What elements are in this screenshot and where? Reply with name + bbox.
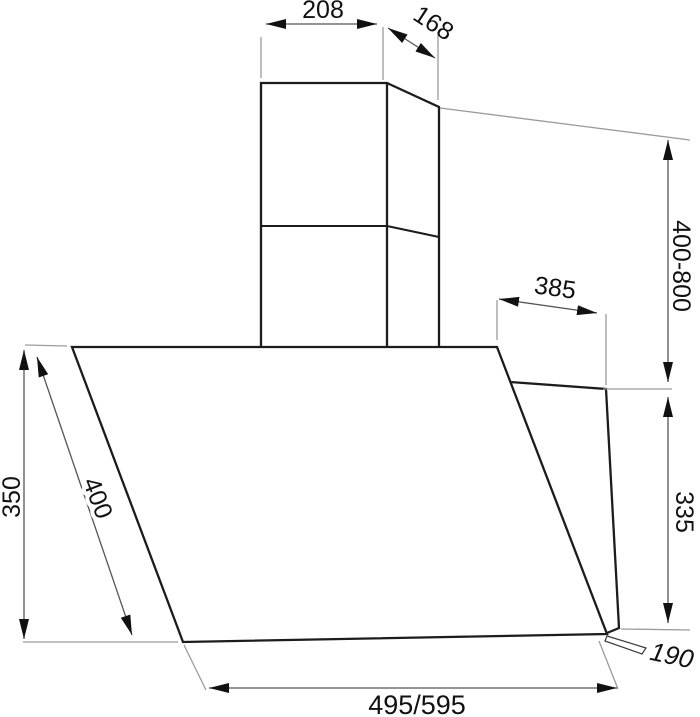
chimney-front-face: [261, 83, 387, 347]
dimension-drawing-canvas: 208 168 400-800 385 350 400: [0, 0, 700, 717]
cooker-hood-dimension-diagram: 208 168 400-800 385 350 400: [0, 0, 700, 717]
hood-front-panel: [72, 347, 607, 642]
hood-outline: [72, 83, 646, 654]
dim-hood-bottom-lip-depth: 190: [648, 636, 697, 674]
dim-label-190: 190: [648, 636, 697, 674]
dim-chimney-height-range: 400-800: [667, 140, 695, 382]
dim-label-495-595: 495/595: [368, 690, 466, 717]
ext-335-bottom: [621, 629, 690, 630]
ext-495-right: [599, 641, 618, 689]
dim-chimney-top-width: 208: [266, 0, 377, 24]
dim-label-335: 335: [670, 491, 698, 533]
ext-495-left: [184, 645, 206, 690]
ext-chimney-to-height-dim: [440, 108, 690, 140]
dim-label-208: 208: [302, 0, 344, 24]
dim-label-168: 168: [408, 0, 458, 46]
dim-hood-front-slant-length: 400: [37, 357, 132, 635]
dim-label-350: 350: [0, 476, 26, 518]
dim-hood-rear-height: 335: [668, 397, 698, 623]
chimney-side-divider: [387, 226, 439, 237]
ext-350-top: [25, 345, 67, 346]
dim-hood-front-height: 350: [0, 350, 26, 639]
hood-bottom-lip: [605, 636, 646, 654]
dim-label-400-800: 400-800: [667, 220, 695, 312]
dim-chimney-top-depth: 168: [388, 0, 458, 58]
hood-side-panel: [510, 382, 619, 633]
dim-label-385: 385: [533, 271, 578, 305]
dim-label-400: 400: [77, 474, 118, 523]
dim-hood-width: 495/595: [209, 688, 617, 717]
dimension-annotations: 208 168 400-800 385 350 400: [0, 0, 698, 717]
chimney-side-face: [387, 83, 439, 347]
dim-hood-top-depth: 385: [499, 271, 597, 313]
